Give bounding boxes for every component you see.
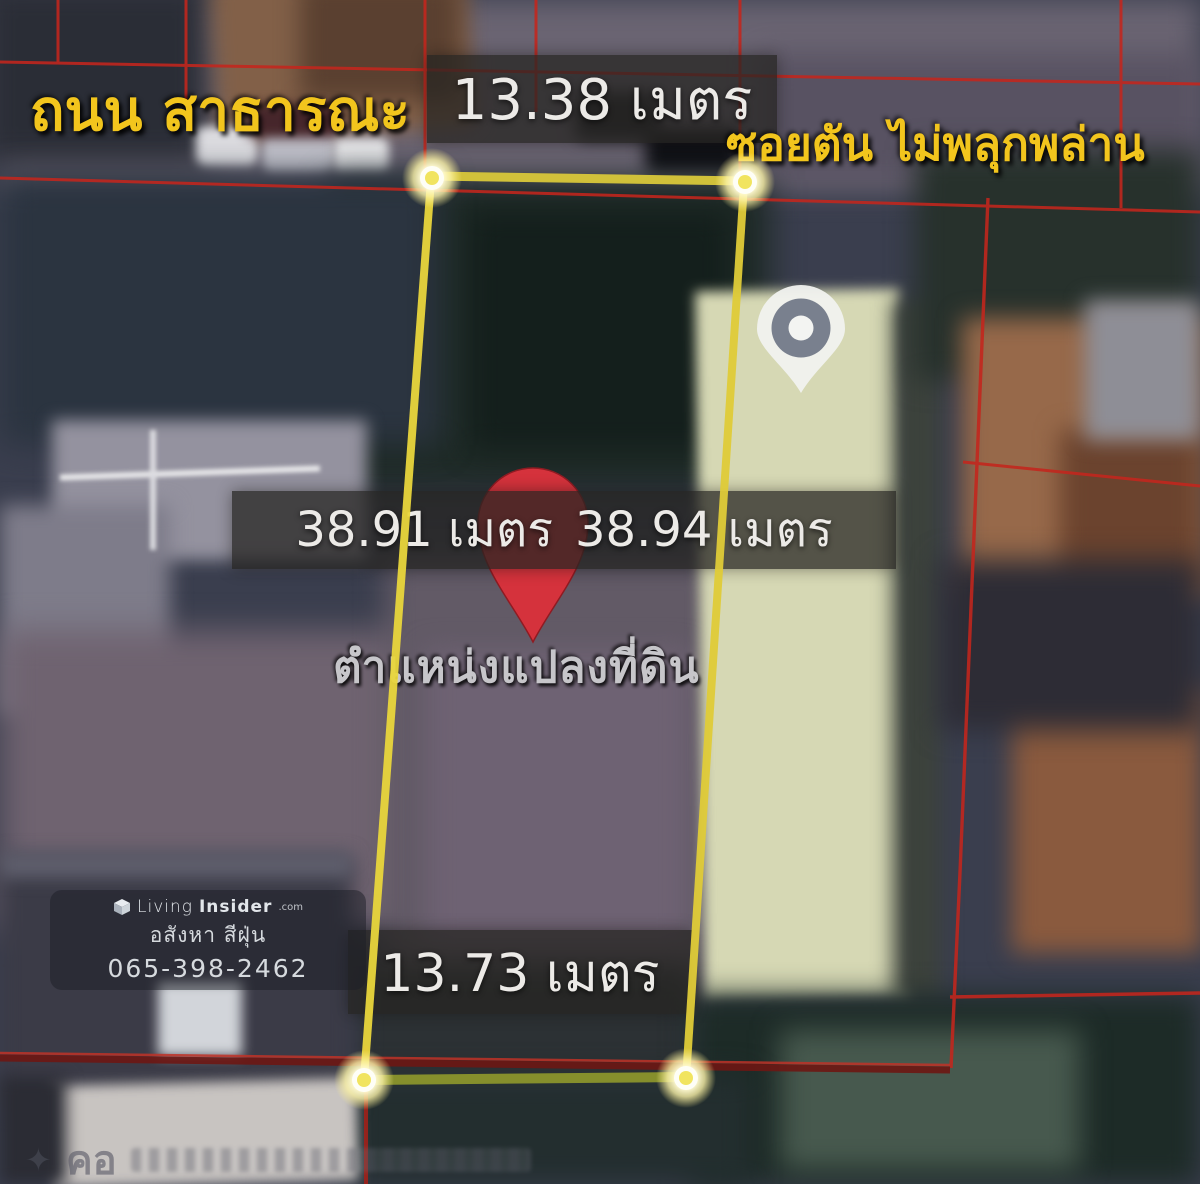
plot-edge-left — [364, 180, 431, 1079]
corner-marker-bottom-left — [334, 1050, 394, 1110]
plot-edge-top — [432, 176, 745, 181]
plot-edge-bottom — [365, 1077, 687, 1080]
plot-boundary — [364, 176, 745, 1080]
corner-marker-top-right — [715, 152, 775, 212]
corner-marker-top-left — [402, 148, 462, 208]
corner-marker-bottom-right — [656, 1048, 716, 1108]
land-plot-satellite-view: 13.38 เมตร ถนน สาธารณะ ซอยตัน ไม่พลุกพล่… — [0, 0, 1200, 1184]
plot-edge-right — [686, 184, 744, 1079]
plot-boundary-overlay — [0, 0, 1200, 1184]
